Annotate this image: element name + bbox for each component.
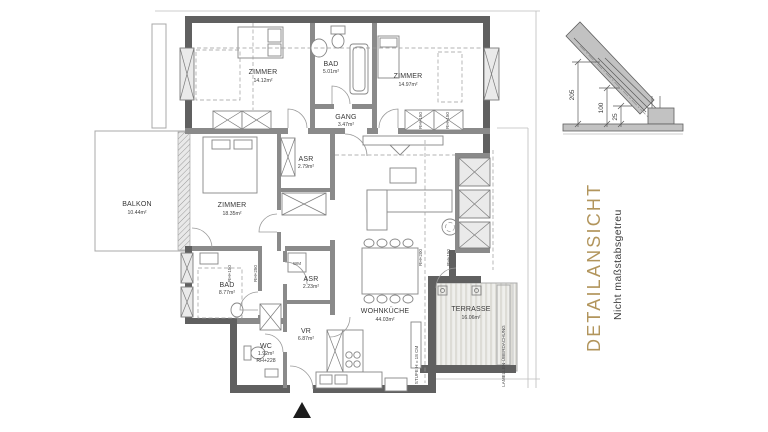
svg-text:BAD: BAD (324, 61, 339, 68)
roof-detail-section: 205 100 25 (563, 22, 683, 134)
dim-25: 25 (612, 113, 619, 121)
svg-text:18.35m²: 18.35m² (222, 211, 241, 217)
rh-label-0: RH+150 (227, 265, 232, 282)
svg-text:WC: WC (260, 343, 272, 350)
svg-text:BAD: BAD (220, 282, 235, 289)
svg-text:2.79m²: 2.79m² (298, 164, 314, 170)
svg-text:RH+228: RH+228 (256, 358, 275, 364)
title-block: DETAILANSICHT Nicht maßstabsgetreu (584, 183, 624, 352)
stufe-label: STUFE H = 18 CM (414, 346, 419, 385)
svg-text:14.97m²: 14.97m² (398, 82, 417, 88)
svg-text:GANG: GANG (335, 114, 356, 121)
floor-plan-sheet: ZIMMER14.12m² BAD5.01m² ZIMMER14.97m² GA… (0, 0, 768, 432)
svg-text:ZIMMER: ZIMMER (218, 202, 247, 209)
svg-text:6.87m²: 6.87m² (298, 336, 314, 342)
room-label-vr: VR6.87m² (298, 328, 314, 342)
svg-text:ASR: ASR (299, 156, 314, 163)
rh-label-2: RH+150 (418, 112, 423, 129)
svg-text:ZIMMER: ZIMMER (394, 73, 423, 80)
lamellen-label: LAMELLEN-ÜBERDACHUNG (500, 325, 506, 387)
room-label-zimmer-3: ZIMMER18.35m² (218, 202, 247, 217)
room-label-bad-2: BAD8.77m² (219, 282, 235, 296)
wm-label: WM (293, 261, 301, 266)
room-label-zimmer-2: ZIMMER14.97m² (394, 73, 423, 88)
room-label-asr-1: ASR2.79m² (298, 156, 314, 170)
detail-subtitle: Nicht maßstabsgetreu (612, 209, 624, 320)
svg-text:VR: VR (301, 328, 311, 335)
dim-100: 100 (598, 102, 605, 113)
room-label-bad-1: BAD5.01m² (323, 61, 339, 75)
detail-title: DETAILANSICHT (584, 183, 604, 352)
svg-text:WOHNKÜCHE: WOHNKÜCHE (361, 307, 410, 315)
entrance-marker-icon (293, 402, 311, 418)
dim-205: 205 (569, 89, 576, 100)
svg-text:2.23m²: 2.23m² (303, 284, 319, 290)
rh-label-1: RH+250 (253, 265, 258, 282)
svg-text:ZIMMER: ZIMMER (249, 69, 278, 76)
room-label-wc: WC1.92m²RH+228 (256, 343, 275, 364)
room-label-balkon: BALKON10.44m² (122, 201, 152, 216)
svg-text:1.92m²: 1.92m² (258, 351, 274, 357)
svg-text:8.77m²: 8.77m² (219, 290, 235, 296)
rh-label-5: RH+150 (446, 249, 451, 266)
svg-text:3.47m²: 3.47m² (338, 122, 354, 128)
svg-text:TERRASSE: TERRASSE (451, 306, 490, 313)
svg-text:16.06m²: 16.06m² (461, 315, 480, 321)
svg-text:ASR: ASR (304, 276, 319, 283)
room-label-asr-2: ASR2.23m² (303, 276, 319, 290)
rh-label-4: RH+200 (418, 249, 423, 266)
rh-label-3: RH+150 (445, 112, 450, 129)
balcony (95, 131, 190, 251)
svg-text:44.03m²: 44.03m² (375, 317, 394, 323)
svg-text:10.44m²: 10.44m² (127, 210, 146, 216)
svg-text:BALKON: BALKON (122, 201, 152, 208)
room-label-gang: GANG3.47m² (335, 114, 356, 128)
svg-text:5.01m²: 5.01m² (323, 69, 339, 75)
room-label-wohnkueche: WOHNKÜCHE44.03m² (361, 307, 410, 323)
svg-text:14.12m²: 14.12m² (253, 78, 272, 84)
floor-plan-drawing: ZIMMER14.12m² BAD5.01m² ZIMMER14.97m² GA… (0, 0, 768, 432)
